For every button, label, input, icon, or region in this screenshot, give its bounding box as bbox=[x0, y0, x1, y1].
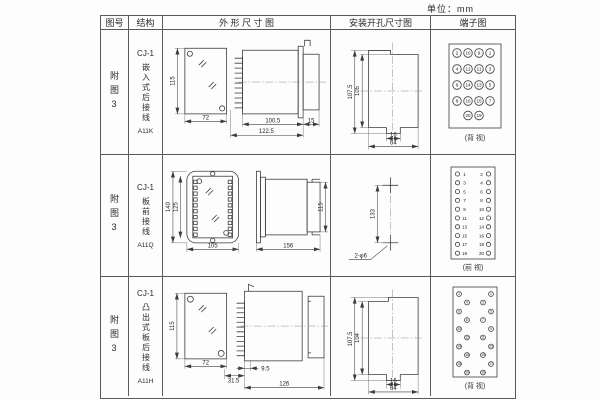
cutout-view: 107.5 104 16 64 bbox=[348, 289, 424, 394]
col-header-install: 安装开孔尺寸图 bbox=[331, 16, 431, 30]
model-label: CJ-1 bbox=[137, 289, 154, 298]
terminal-number: 2 bbox=[458, 292, 460, 296]
outline-cell: 115 72 9.5 31.5 bbox=[163, 277, 331, 396]
terminal-number: 4 bbox=[466, 301, 468, 305]
col-header-structure: 结构 bbox=[129, 16, 163, 30]
model-code: A11Q bbox=[137, 242, 153, 249]
terminal-cell: 1 2 3 4 5 6 7 8 9 10 11 12 13 14 15 16 1 bbox=[431, 155, 515, 277]
terminal-number: 12 bbox=[479, 215, 485, 220]
terminal-number: 20 bbox=[465, 371, 469, 375]
manual-page: 单位：mm 图号 结构 外 形 尺 寸 图 安装开孔尺寸图 端子图 附图3 CJ… bbox=[0, 0, 600, 400]
col-header-terminal: 端子图 bbox=[431, 16, 515, 30]
terminal-number: 8 bbox=[466, 318, 468, 322]
terminal-number: 14 bbox=[465, 82, 471, 87]
fig-no-cell: 附图3 bbox=[101, 277, 129, 396]
terminal-number: 19 bbox=[476, 113, 482, 118]
front-view: 115 72 bbox=[170, 293, 227, 369]
terminal-number: 13 bbox=[489, 345, 493, 349]
terminal-number: 18 bbox=[479, 242, 485, 247]
terminal-number: 9 bbox=[478, 50, 481, 55]
terminal-number: 12 bbox=[465, 66, 471, 71]
hole-view: 133 2-φ6 bbox=[349, 177, 399, 259]
terminal-number: 20 bbox=[465, 113, 471, 118]
outline-cell: 115 72 100.5 15 122.5 bbox=[163, 30, 331, 155]
structure-desc: 嵌入式后接线 bbox=[142, 63, 150, 123]
dimension-label: 2-φ6 bbox=[354, 253, 367, 259]
terminal-number: 3 bbox=[463, 180, 466, 185]
dimension-label: 115 bbox=[170, 75, 176, 85]
terminal-number: 11 bbox=[481, 336, 485, 340]
dimension-label: 72 bbox=[202, 360, 209, 366]
side-view: 156 115 bbox=[256, 171, 328, 252]
side-view: 100.5 15 122.5 bbox=[231, 40, 326, 137]
terminal-number: 6 bbox=[480, 189, 483, 194]
view-label: (前 视) bbox=[463, 262, 484, 271]
outline-drawing: 115 72 100.5 15 122.5 bbox=[163, 30, 330, 155]
side-view: 9.5 31.5 126 bbox=[225, 284, 328, 389]
structure-desc: 凸出式板后接线 bbox=[142, 303, 150, 373]
terminal-number: 1 bbox=[463, 171, 466, 176]
terminal-number: 20 bbox=[479, 251, 485, 256]
fig-no: 附图3 bbox=[108, 315, 121, 358]
terminal-number: 19 bbox=[462, 251, 468, 256]
terminal-number: 4 bbox=[480, 180, 483, 185]
model-label: CJ-1 bbox=[137, 49, 154, 58]
install-drawing: 107.5 105 16 64 bbox=[331, 30, 430, 155]
structure-cell: CJ-1 凸出式板后接线 A11H bbox=[129, 277, 163, 396]
col-header-fig-no: 图号 bbox=[101, 16, 129, 30]
terminal-grid: 2 10 9 1 4 12 11 3 6 14 13 5 8 16 15 7 2 bbox=[453, 48, 495, 119]
terminal-number: 8 bbox=[456, 98, 459, 103]
fig-no-cell: 附图3 bbox=[101, 30, 129, 155]
dimension-label: 126 bbox=[279, 382, 290, 388]
dimension-label: 9.5 bbox=[261, 366, 270, 372]
spec-table: 图号 结构 外 形 尺 寸 图 安装开孔尺寸图 端子图 附图3 CJ-1 嵌入式… bbox=[100, 15, 516, 399]
terminal-number: 6 bbox=[456, 82, 459, 87]
terminal-number: 13 bbox=[462, 224, 468, 229]
dimension-label: 72 bbox=[202, 115, 209, 121]
fig-no-cell: 附图3 bbox=[101, 155, 129, 277]
fig-no: 附图3 bbox=[108, 194, 121, 237]
dimension-label: 16 bbox=[390, 379, 397, 385]
dimension-label: 64 bbox=[390, 140, 397, 146]
terminal-number: 1 bbox=[490, 292, 492, 296]
terminal-number: 13 bbox=[476, 82, 482, 87]
terminal-number: 1 bbox=[489, 50, 492, 55]
terminal-grid: 1 2 3 4 5 6 7 8 9 10 11 12 13 14 15 16 1 bbox=[455, 171, 490, 255]
terminal-number: 12 bbox=[465, 336, 469, 340]
dimension-label: 125 bbox=[173, 201, 179, 212]
terminal-number: 7 bbox=[489, 98, 492, 103]
model-code: A11K bbox=[138, 128, 153, 135]
terminal-number: 6 bbox=[458, 310, 460, 314]
terminal-number: 10 bbox=[465, 50, 471, 55]
terminal-number: 9 bbox=[490, 327, 492, 331]
terminal-number: 11 bbox=[462, 215, 467, 220]
front-view: 115 72 bbox=[170, 48, 226, 124]
view-label: (背 视) bbox=[465, 381, 486, 390]
terminal-number: 10 bbox=[479, 207, 485, 212]
terminal-number: 16 bbox=[465, 353, 469, 357]
terminal-number: 19 bbox=[481, 371, 485, 375]
dimension-label: 133 bbox=[371, 208, 377, 219]
dimension-label: 15 bbox=[308, 118, 315, 124]
terminal-number: 2 bbox=[456, 50, 459, 55]
view-label: (背 视) bbox=[465, 133, 486, 142]
dimension-label: 105 bbox=[355, 85, 361, 96]
terminal-number: 15 bbox=[481, 353, 485, 357]
terminal-diagram: 1 2 3 4 5 6 7 8 9 10 11 12 13 14 15 16 1 bbox=[431, 155, 515, 277]
model-label: CJ-1 bbox=[137, 183, 154, 192]
structure-desc: 板前接线 bbox=[142, 197, 150, 237]
terminal-number: 8 bbox=[480, 198, 483, 203]
dimension-label: 100.5 bbox=[265, 118, 281, 124]
outline-drawing: 140 125 105 156 115 bbox=[163, 155, 330, 277]
dimension-label: 156 bbox=[283, 243, 294, 249]
terminal-number: 5 bbox=[463, 189, 466, 194]
terminal-number: 3 bbox=[482, 301, 484, 305]
structure-cell: CJ-1 板前接线 A11Q bbox=[129, 155, 163, 277]
dimension-label: 122.5 bbox=[259, 129, 275, 135]
terminal-number: 16 bbox=[465, 98, 471, 103]
terminal-number: 14 bbox=[479, 224, 485, 229]
terminal-number: 5 bbox=[490, 310, 492, 314]
terminal-number: 5 bbox=[489, 82, 492, 87]
dimension-label: 104 bbox=[355, 332, 361, 343]
terminal-number: 7 bbox=[463, 198, 466, 203]
terminal-number: 16 bbox=[479, 233, 485, 238]
terminal-number: 9 bbox=[463, 207, 466, 212]
fig-no: 附图3 bbox=[108, 71, 121, 114]
terminal-number: 2 bbox=[480, 171, 483, 176]
terminal-number: 3 bbox=[489, 66, 492, 71]
dimension-label: 16 bbox=[390, 132, 397, 138]
install-cell: 107.5 104 16 64 bbox=[331, 277, 431, 396]
outline-drawing: 115 72 9.5 31.5 bbox=[163, 277, 330, 396]
terminal-grid: 2 6 10 14 18 4 8 12 16 20 3 7 11 15 19 1 bbox=[457, 292, 494, 375]
unit-label: 单位：mm bbox=[427, 2, 474, 15]
dimension-label: 115 bbox=[170, 321, 176, 331]
terminal-number: 18 bbox=[457, 362, 461, 366]
install-cell: 107.5 105 16 64 bbox=[331, 30, 431, 155]
outline-cell: 140 125 105 156 115 bbox=[163, 155, 331, 277]
structure-cell: CJ-1 嵌入式后接线 A11K bbox=[129, 30, 163, 155]
terminal-diagram: 2 6 10 14 18 4 8 12 16 20 3 7 11 15 19 1 bbox=[431, 277, 515, 396]
install-drawing: 107.5 104 16 64 bbox=[331, 277, 430, 396]
terminal-cell: 2 10 9 1 4 12 11 3 6 14 13 5 8 16 15 7 2 bbox=[431, 30, 515, 155]
terminal-number: 17 bbox=[489, 362, 493, 366]
cutout-view: 107.5 105 16 64 bbox=[348, 42, 424, 149]
terminal-number: 15 bbox=[462, 233, 468, 238]
terminal-number: 17 bbox=[462, 242, 468, 247]
front-view: 140 125 105 bbox=[166, 171, 239, 252]
terminal-number: 10 bbox=[457, 327, 461, 331]
terminal-number: 7 bbox=[482, 318, 484, 322]
terminal-number: 11 bbox=[477, 66, 482, 71]
terminal-number: 15 bbox=[476, 98, 482, 103]
terminal-diagram: 2 10 9 1 4 12 11 3 6 14 13 5 8 16 15 7 2 bbox=[431, 30, 515, 155]
dimension-label: 140 bbox=[166, 201, 172, 212]
terminal-number: 14 bbox=[457, 345, 461, 349]
dimension-label: 107.5 bbox=[348, 331, 354, 347]
model-code: A11H bbox=[138, 378, 154, 385]
dimension-label: 107.5 bbox=[348, 83, 354, 99]
dimension-label: 105 bbox=[208, 243, 219, 249]
dimension-label: 115 bbox=[319, 201, 325, 211]
terminal-cell: 2 6 10 14 18 4 8 12 16 20 3 7 11 15 19 1 bbox=[431, 277, 515, 396]
col-header-outline: 外 形 尺 寸 图 bbox=[163, 16, 331, 30]
install-drawing: 133 2-φ6 bbox=[331, 155, 430, 277]
dimension-label: 31.5 bbox=[228, 379, 240, 385]
dimension-label: 64 bbox=[390, 386, 397, 392]
install-cell: 133 2-φ6 bbox=[331, 155, 431, 277]
terminal-number: 4 bbox=[456, 66, 459, 71]
